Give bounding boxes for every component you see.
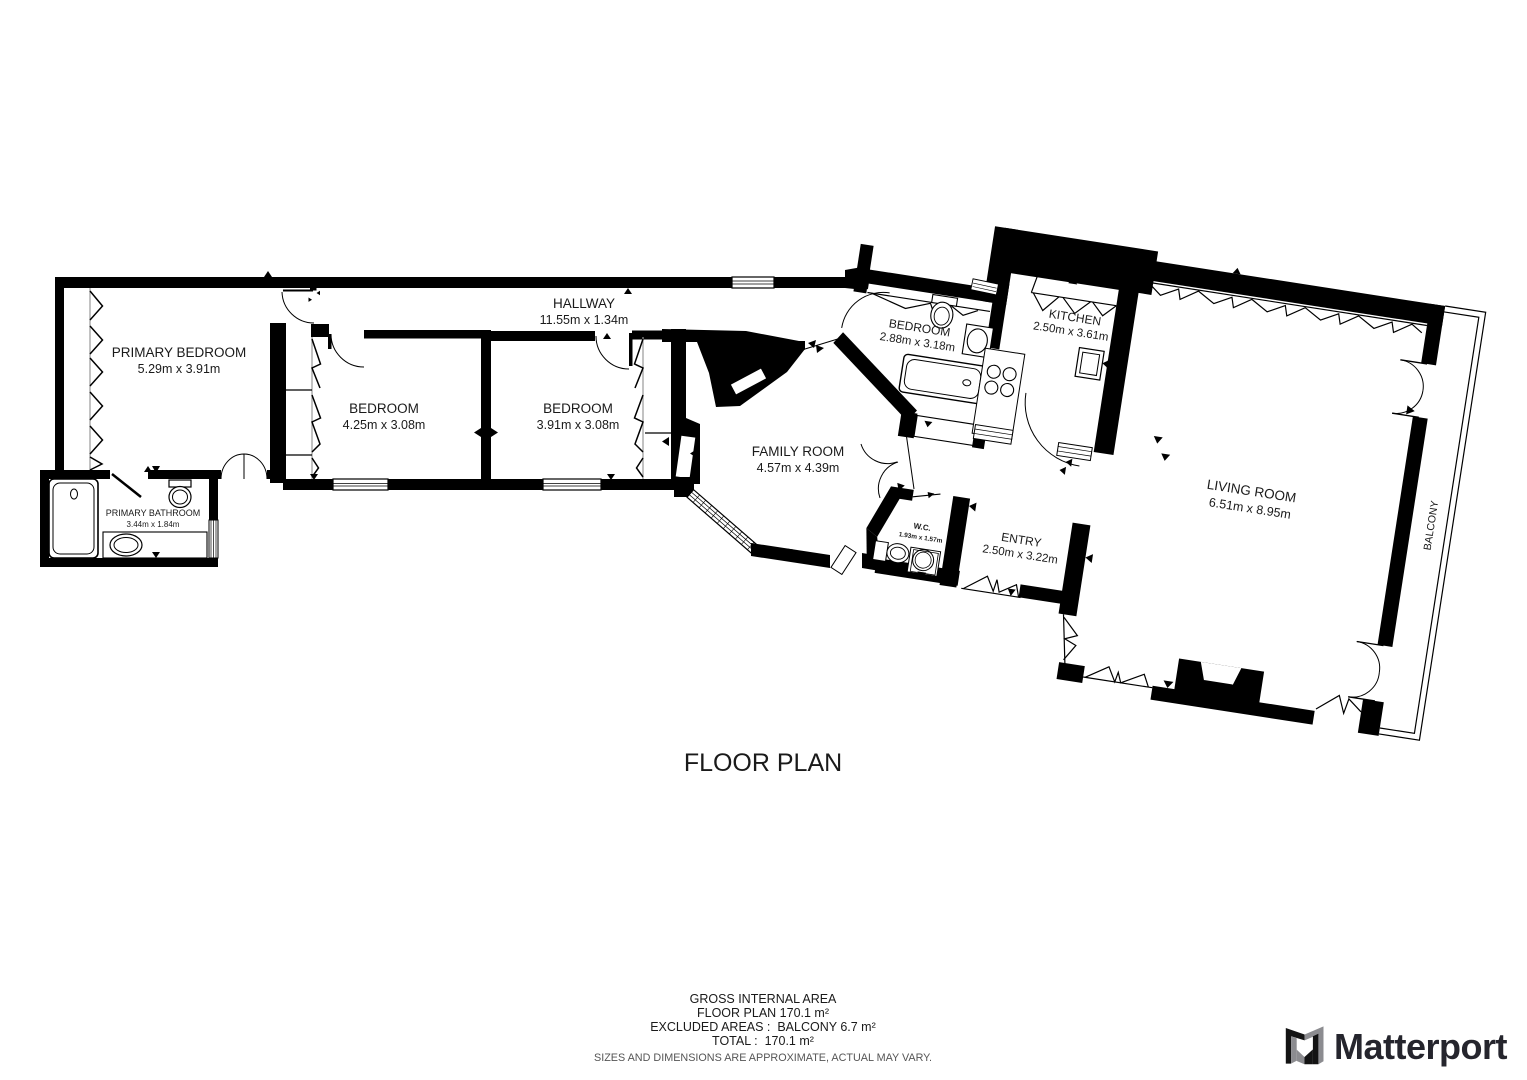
svg-text:Matterport: Matterport [1334, 1026, 1508, 1067]
svg-text:TOTAL : 170.1 m²: TOTAL : 170.1 m² [712, 1034, 814, 1048]
svg-text:5.29m x 3.91m: 5.29m x 3.91m [138, 362, 221, 376]
svg-text:PRIMARY BATHROOM: PRIMARY BATHROOM [106, 508, 201, 518]
svg-text:BEDROOM: BEDROOM [349, 401, 419, 416]
svg-text:FAMILY ROOM: FAMILY ROOM [752, 444, 845, 459]
svg-text:4.57m x 4.39m: 4.57m x 4.39m [757, 461, 840, 475]
svg-text:11.55m x 1.34m: 11.55m x 1.34m [540, 313, 629, 327]
svg-text:HALLWAY: HALLWAY [553, 296, 615, 311]
svg-text:PRIMARY BEDROOM: PRIMARY BEDROOM [112, 345, 247, 360]
svg-text:FLOOR PLAN: FLOOR PLAN [684, 749, 842, 777]
svg-text:SIZES AND DIMENSIONS ARE APPRO: SIZES AND DIMENSIONS ARE APPROXIMATE, AC… [594, 1052, 932, 1064]
svg-text:FLOOR PLAN 170.1 m²: FLOOR PLAN 170.1 m² [697, 1006, 829, 1020]
svg-text:GROSS INTERNAL AREA: GROSS INTERNAL AREA [690, 992, 837, 1006]
svg-text:3.91m x 3.08m: 3.91m x 3.08m [537, 418, 620, 432]
svg-text:BEDROOM: BEDROOM [543, 401, 613, 416]
svg-text:3.44m x 1.84m: 3.44m x 1.84m [127, 520, 180, 529]
svg-text:EXCLUDED AREAS : BALCONY 6.7: EXCLUDED AREAS : BALCONY 6.7 m² [650, 1020, 876, 1034]
svg-text:4.25m x 3.08m: 4.25m x 3.08m [343, 418, 426, 432]
